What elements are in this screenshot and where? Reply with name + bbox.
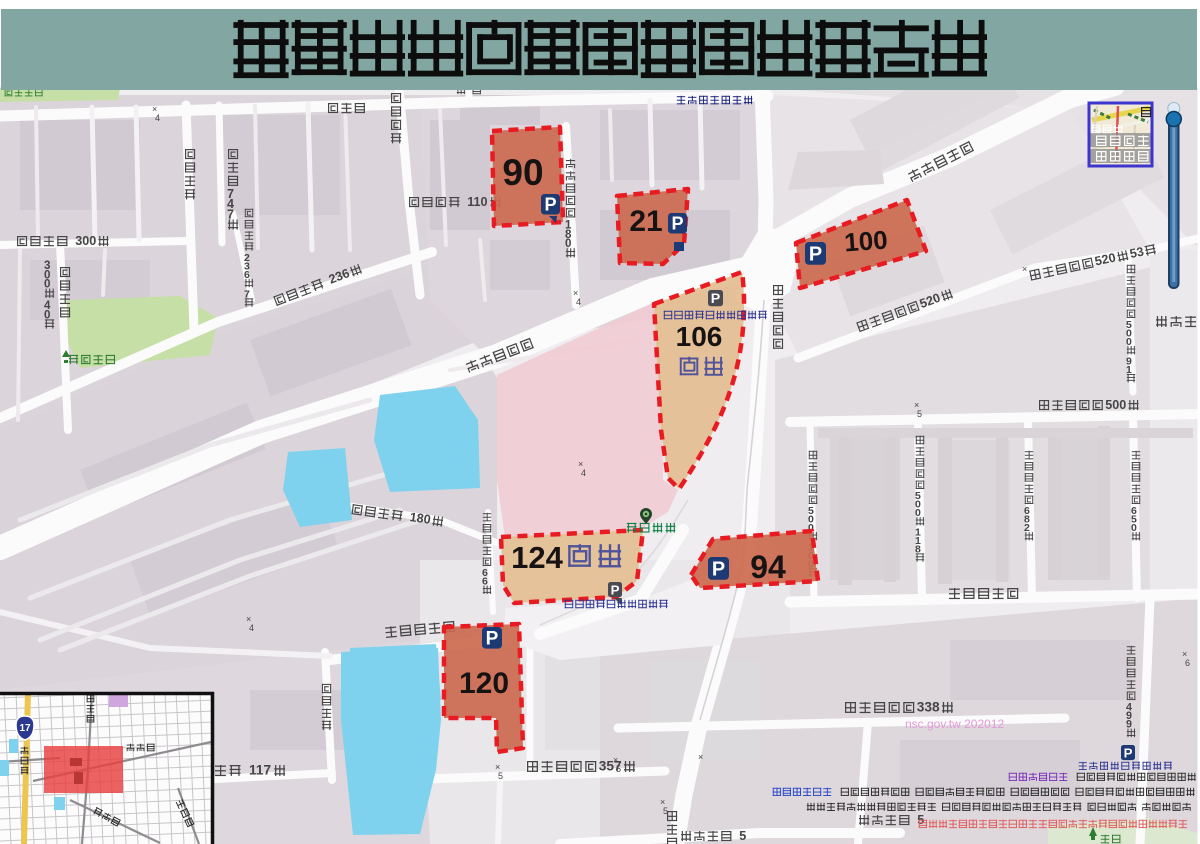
svg-text:117: 117 [249, 763, 271, 778]
svg-text:21: 21 [629, 205, 662, 238]
svg-text:4: 4 [581, 468, 586, 478]
svg-text:106: 106 [676, 321, 723, 352]
svg-text:0: 0 [44, 308, 50, 321]
svg-text:0: 0 [565, 237, 571, 250]
svg-text:×: × [698, 752, 703, 762]
svg-text:300: 300 [75, 234, 96, 248]
svg-text:P: P [711, 291, 720, 307]
svg-text:53: 53 [1128, 244, 1145, 261]
svg-text:4: 4 [249, 623, 254, 633]
svg-text:P: P [809, 244, 822, 266]
svg-text:6: 6 [1185, 658, 1190, 668]
svg-text:P: P [611, 582, 620, 597]
svg-text:P: P [1124, 745, 1133, 760]
svg-text:P: P [712, 559, 725, 581]
svg-text:94: 94 [750, 549, 786, 585]
svg-text:100: 100 [843, 225, 888, 258]
svg-text:4: 4 [155, 113, 160, 123]
svg-text:7: 7 [227, 207, 234, 221]
svg-text:P: P [544, 195, 556, 215]
svg-text:90: 90 [502, 152, 543, 193]
svg-text:124: 124 [511, 540, 563, 575]
svg-text:17: 17 [19, 723, 31, 734]
svg-text:5: 5 [739, 829, 746, 843]
svg-text:4: 4 [576, 297, 581, 307]
svg-text:357: 357 [599, 759, 622, 774]
svg-text:0: 0 [44, 278, 50, 291]
svg-text:nsc.gov.tw 202012: nsc.gov.tw 202012 [905, 717, 1005, 731]
svg-text:338: 338 [917, 700, 940, 715]
svg-text:5: 5 [917, 409, 922, 419]
svg-text:120: 120 [459, 667, 509, 700]
svg-text:×: × [1022, 264, 1027, 274]
svg-text:110: 110 [467, 195, 487, 209]
svg-text:P: P [671, 214, 683, 234]
svg-text:P: P [486, 629, 499, 650]
svg-text:500: 500 [1105, 398, 1126, 412]
svg-text:5: 5 [498, 771, 503, 781]
svg-text:180: 180 [409, 510, 432, 527]
